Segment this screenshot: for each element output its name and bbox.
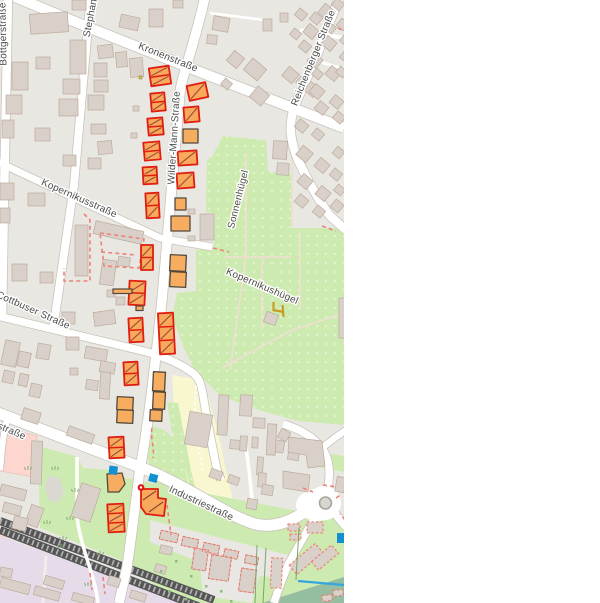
svg-text:Böttgerstraße: Böttgerstraße <box>0 2 10 66</box>
